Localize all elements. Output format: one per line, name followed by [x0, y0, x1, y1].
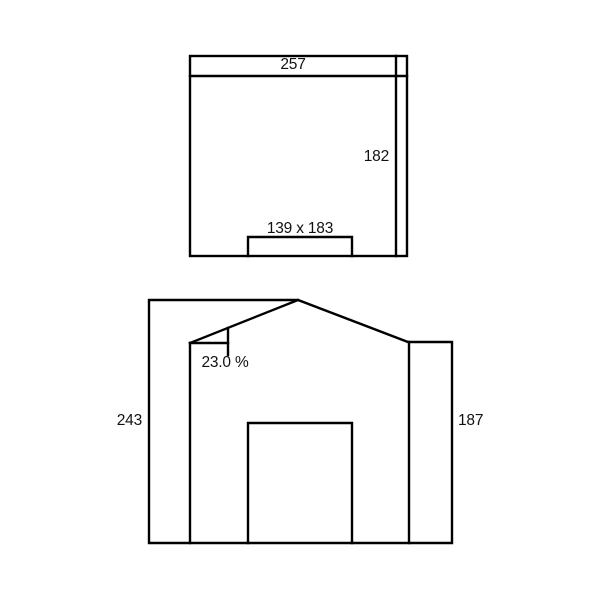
elevation-left-height-dimension: 243: [80, 413, 142, 429]
elevation-left-roof-slope-line: [190, 300, 298, 343]
elevation-door-opening: [248, 423, 352, 543]
elevation-view: [149, 300, 452, 543]
elevation-outline: [149, 300, 452, 543]
plan-width-dimension: 257: [190, 57, 396, 73]
plan-door-opening: [248, 237, 352, 256]
technical-drawing-page: 257 182 139 x 183 23.0 % 243 187: [0, 0, 600, 600]
plan-door-size-dimension: 139 x 183: [248, 221, 352, 237]
elevation-roof-slope-dimension: 23.0 %: [185, 355, 265, 371]
plan-depth-dimension: 182: [330, 149, 389, 165]
elevation-right-height-dimension: 187: [458, 413, 518, 429]
drawing-canvas: [0, 0, 600, 600]
